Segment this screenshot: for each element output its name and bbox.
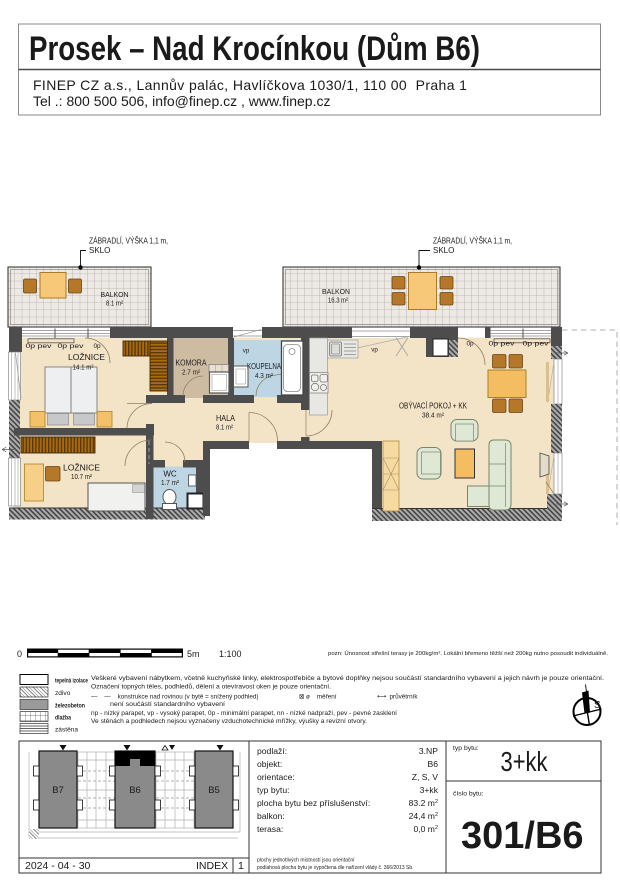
svg-text:ZÁBRADLÍ, VÝŠKA 1,1 m,: ZÁBRADLÍ, VÝŠKA 1,1 m, bbox=[433, 237, 512, 246]
svg-text:terasa:: terasa: bbox=[257, 824, 283, 834]
svg-text:SKLO: SKLO bbox=[433, 246, 454, 255]
svg-text:5m: 5m bbox=[187, 649, 200, 659]
svg-text:KOMORA: KOMORA bbox=[176, 359, 208, 368]
svg-text:podlahová plocha bytu je vypoč: podlahová plocha bytu je vypočtena dle n… bbox=[257, 865, 414, 871]
svg-text:301/B6: 301/B6 bbox=[461, 815, 584, 857]
svg-text:3.NP: 3.NP bbox=[419, 746, 438, 756]
svg-text:Veškeré vybavení nábytkem, vče: Veškeré vybavení nábytkem, včetně kuchyň… bbox=[91, 675, 604, 682]
svg-text:1.7 m²: 1.7 m² bbox=[161, 478, 179, 487]
svg-text:B5: B5 bbox=[208, 785, 220, 796]
svg-text:typ bytu:: typ bytu: bbox=[257, 785, 289, 795]
svg-text:0p pev: 0p pev bbox=[489, 341, 516, 348]
svg-text:38.4 m²: 38.4 m² bbox=[422, 411, 444, 420]
svg-text:dlažba: dlažba bbox=[55, 715, 71, 722]
svg-text:Z, S, V: Z, S, V bbox=[412, 772, 439, 782]
svg-text:4.3 m²: 4.3 m² bbox=[255, 371, 273, 380]
svg-text:⊠ ø měření: ⊠ ø měření bbox=[299, 694, 337, 701]
svg-text:2024 - 04 - 30: 2024 - 04 - 30 bbox=[25, 860, 91, 872]
svg-text:OBÝVACÍ POKOJ + KK: OBÝVACÍ POKOJ + KK bbox=[399, 402, 468, 411]
svg-text:vp: vp bbox=[243, 348, 250, 355]
svg-text:plochy jednotlivých místností: plochy jednotlivých místností jsou orien… bbox=[257, 858, 355, 864]
svg-text:2.7 m²: 2.7 m² bbox=[182, 368, 200, 377]
svg-text:Označení topných těles, podhle: Označení topných těles, podhledů, dělení… bbox=[91, 683, 331, 691]
svg-text:3+kk: 3+kk bbox=[500, 747, 548, 778]
svg-text:8.1 m²: 8.1 m² bbox=[216, 423, 233, 432]
svg-text:0p: 0p bbox=[93, 343, 101, 350]
svg-text:INDEX: INDEX bbox=[196, 860, 228, 872]
svg-text:0p pev: 0p pev bbox=[523, 341, 550, 348]
svg-text:objekt:: objekt: bbox=[257, 759, 282, 769]
svg-text:0,0 m2: 0,0 m2 bbox=[413, 824, 438, 834]
svg-text:Tel .: 800 500 506, info@finep: Tel .: 800 500 506, info@finep.cz , www.… bbox=[33, 93, 331, 109]
svg-text:tepelná izolace: tepelná izolace bbox=[55, 678, 88, 685]
svg-text:14.1 m²: 14.1 m² bbox=[73, 363, 94, 372]
svg-text:KOUPELNA: KOUPELNA bbox=[247, 362, 282, 371]
svg-text:FINEP CZ a.s., Lannův palác, H: FINEP CZ a.s., Lannův palác, Havlíčkova … bbox=[33, 77, 467, 93]
svg-text:Prosek – Nad Krocínkou (Dům B6: Prosek – Nad Krocínkou (Dům B6) bbox=[29, 29, 480, 67]
svg-text:pozn: Únosnost střešní terasy: pozn: Únosnost střešní terasy je 200kg/m… bbox=[328, 650, 608, 657]
svg-text:⟷ průvětrník: ⟷ průvětrník bbox=[377, 693, 418, 701]
svg-text:železobeton: železobeton bbox=[55, 703, 85, 710]
svg-text:0p pev: 0p pev bbox=[26, 343, 53, 350]
svg-text:LOŽNICE: LOŽNICE bbox=[68, 353, 105, 362]
svg-text:10.7 m²: 10.7 m² bbox=[71, 472, 92, 481]
svg-text:SKLO: SKLO bbox=[89, 246, 110, 255]
svg-text:1: 1 bbox=[238, 860, 244, 872]
svg-text:číslo bytu:: číslo bytu: bbox=[453, 791, 484, 798]
svg-text:vp: vp bbox=[371, 347, 378, 354]
svg-text:83.2 m2: 83.2 m2 bbox=[409, 798, 438, 808]
svg-text:orientace:: orientace: bbox=[257, 772, 295, 782]
svg-text:24,4 m2: 24,4 m2 bbox=[409, 811, 438, 821]
svg-text:plocha bytu bez příslušenství:: plocha bytu bez příslušenství: bbox=[257, 798, 370, 808]
svg-text:podlaží:: podlaží: bbox=[257, 746, 287, 756]
svg-text:0p: 0p bbox=[466, 341, 474, 348]
svg-text:B7: B7 bbox=[52, 785, 64, 796]
svg-text:Ve stěnách a podhledech nejsou: Ve stěnách a podhledech nejsou vyznačeny… bbox=[91, 718, 367, 725]
svg-text:zdivo: zdivo bbox=[55, 690, 71, 697]
svg-text:0p pev: 0p pev bbox=[58, 343, 85, 350]
svg-text:B6: B6 bbox=[129, 785, 141, 796]
svg-text:np - nízký parapet, vp - vysok: np - nízký parapet, vp - vysoký parapet,… bbox=[91, 710, 397, 717]
svg-text:3+kk: 3+kk bbox=[420, 785, 439, 795]
svg-text:16.3 m²: 16.3 m² bbox=[328, 296, 348, 305]
svg-text:ZÁBRADLÍ, VÝŠKA 1,1 m,: ZÁBRADLÍ, VÝŠKA 1,1 m, bbox=[89, 237, 168, 246]
svg-text:typ bytu:: typ bytu: bbox=[453, 745, 479, 752]
svg-text:S: S bbox=[594, 700, 601, 711]
svg-text:1:100: 1:100 bbox=[219, 649, 242, 659]
svg-text:— — konstrukce nad rovin: — — konstrukce nad rovinou (v bytě = sní… bbox=[91, 694, 258, 701]
svg-text:zástěna: zástěna bbox=[55, 727, 78, 734]
svg-text:balkon:: balkon: bbox=[257, 811, 285, 821]
svg-text:8.1 m²: 8.1 m² bbox=[106, 299, 124, 308]
svg-text:0: 0 bbox=[17, 649, 22, 659]
svg-text:B6: B6 bbox=[427, 759, 438, 769]
svg-text:není součástí standardního vyb: není součástí standardního vybavení bbox=[110, 701, 225, 708]
